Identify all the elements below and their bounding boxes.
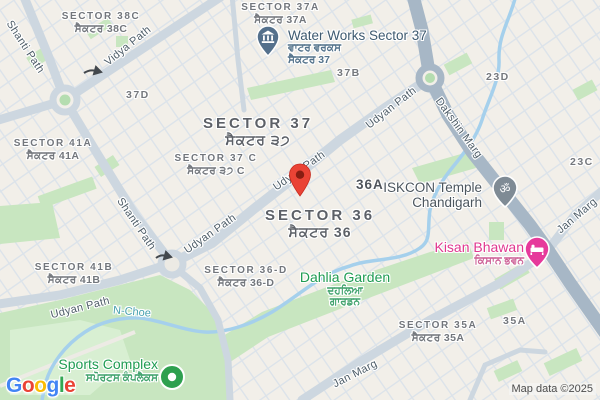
om-icon: ॐ: [492, 175, 518, 208]
kisan-bhawan-pin[interactable]: [524, 236, 550, 274]
iskcon-temple-pin[interactable]: ॐ: [492, 175, 518, 213]
sector-label-37c: SECTOR 37 Cਸੈਕਟਰ ੩੭ C: [168, 152, 264, 179]
sector-label-37: SECTOR 37ਸੈਕਟਰ ੩੭: [194, 115, 322, 148]
block-label-23d: 23D: [486, 71, 510, 83]
map-attribution: Map data ©2025: [509, 383, 597, 395]
water-works-pin[interactable]: [256, 25, 280, 62]
location-marker[interactable]: [288, 163, 312, 202]
block-label-23c: 23C: [570, 156, 594, 168]
map-canvas[interactable]: SECTOR 38Cਸੈਕਟਰ 38C SECTOR 37Aਸੈਕਟਰ 37A …: [0, 0, 600, 400]
google-logo[interactable]: Google: [6, 374, 75, 398]
sector-label-37a: SECTOR 37Aਸੈਕਟਰ 37A: [233, 1, 328, 28]
sector-label-41a: SECTOR 41Aਸੈਕਟਰ 41A: [8, 137, 98, 164]
sports-complex-pin[interactable]: [158, 363, 186, 396]
bank-icon: [256, 25, 280, 57]
park-dot-icon: [158, 363, 186, 391]
red-marker-icon: [288, 163, 312, 197]
svg-text:ॐ: ॐ: [500, 182, 511, 196]
sector-label-41b: SECTOR 41Bਸੈਕਟਰ 41B: [28, 261, 120, 288]
sector-label-36: SECTOR 36ਸੈਕਟਰ 36: [258, 207, 382, 240]
bed-icon: [524, 236, 550, 269]
block-label-37d: 37D: [126, 89, 150, 101]
poi-kisan-bhawan[interactable]: Kisan Bhawan ਕਿਸਾਨ ਭਵਨ: [420, 240, 524, 267]
block-label-37b: 37B: [337, 67, 361, 79]
sector-label-35a: SECTOR 35Aਸੈਕਟਰ 35A: [388, 319, 488, 346]
block-label-35a: 35A: [503, 315, 527, 327]
sector-label-36d: SECTOR 36-Dਸੈਕਟਰ 36-D: [196, 264, 296, 291]
poi-iskcon-temple[interactable]: ISKCON Temple Chandigarh: [378, 180, 482, 210]
poi-dahlia-garden[interactable]: Dahlia Garden ਦਹਲਿਆ ਗਾਰਡਨ: [293, 270, 397, 309]
poi-water-works[interactable]: Water Works Sector 37 ਵਾਟਰ ਵਰਕਸ ਸੈਕਟਰ 37: [288, 28, 427, 67]
